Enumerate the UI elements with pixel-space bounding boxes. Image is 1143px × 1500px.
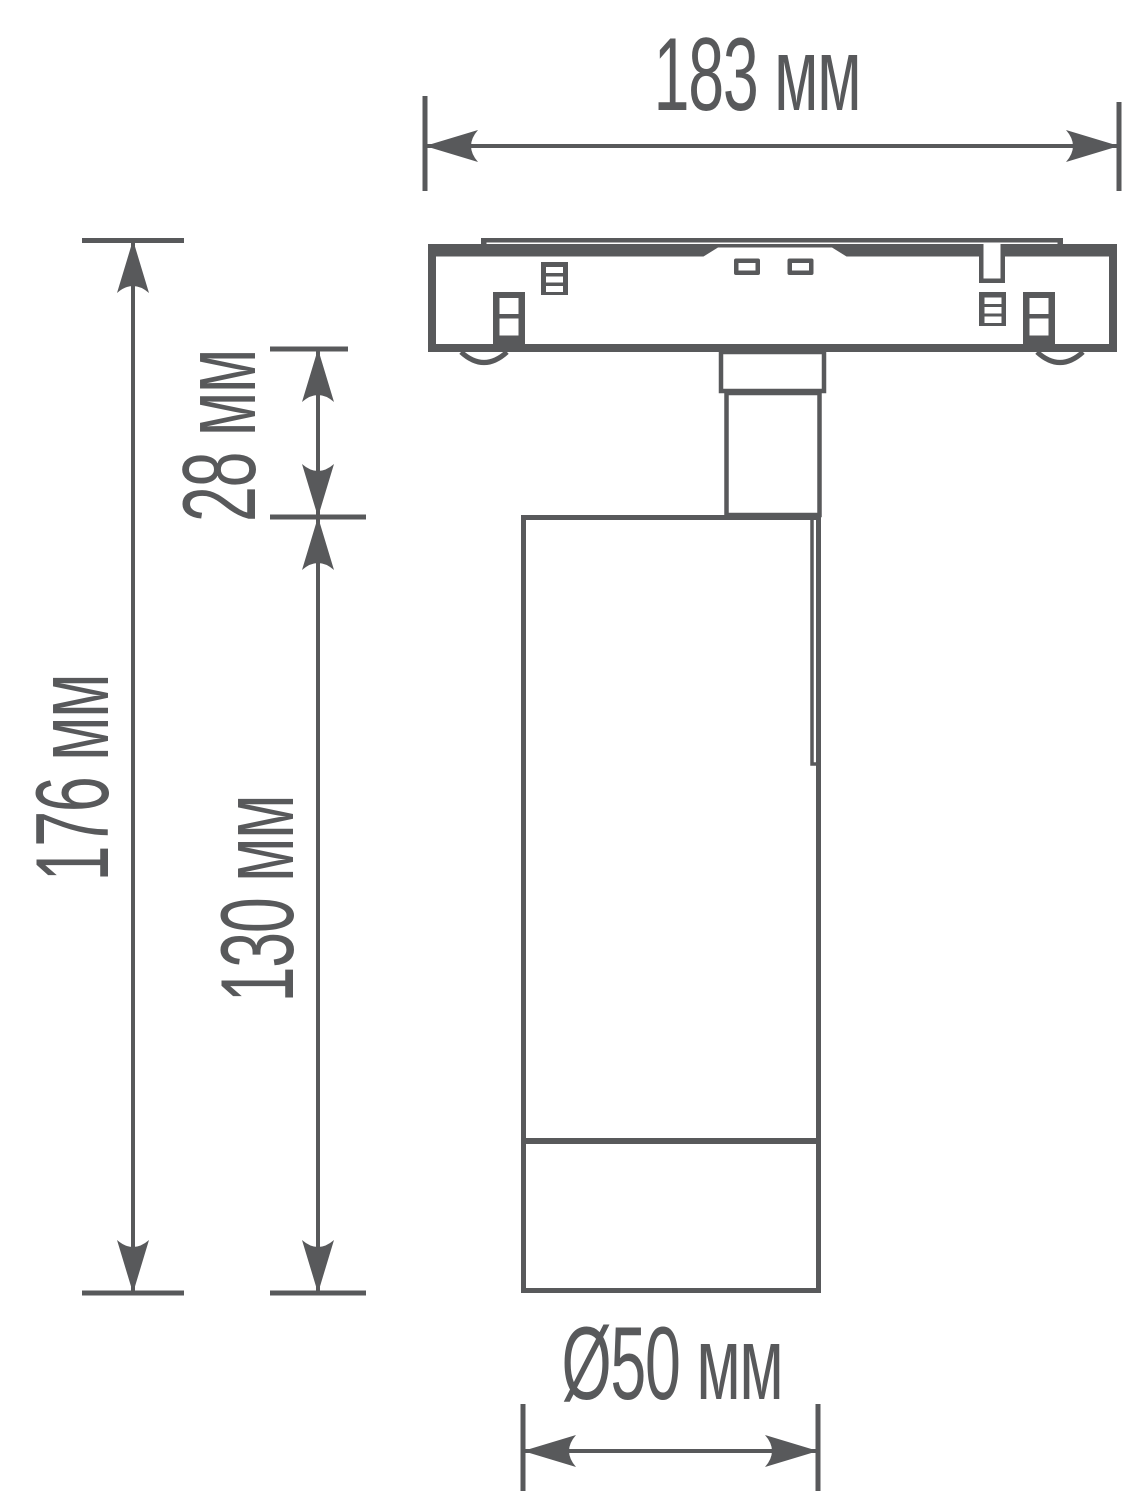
stem [727,393,820,515]
track-adapter [428,238,1117,363]
arrow-down-icon [117,1240,149,1293]
dimension-stem-height: 28 мм [162,349,366,522]
dimension-label-stem-height: 28 мм [162,350,277,522]
arrow-left-icon [425,130,478,162]
dimension-label-track-width: 183 мм [654,17,861,132]
lamp-assembly [521,352,824,1291]
arrow-up-icon [302,517,334,570]
track-spotlight-dimension-drawing: 183 мм 176 мм 28 мм 130 мм [0,0,1143,1500]
adapter-bottom-bar [428,344,1117,352]
dimension-label-body-height: 130 мм [200,796,315,1003]
arrow-up-icon [302,349,334,402]
adapter-top-bar [428,244,1117,257]
arrow-right-icon [1066,130,1119,162]
dimension-body-diameter: Ø50 мм [523,1306,818,1491]
lamp-body [524,518,819,1291]
roller-left [461,352,507,363]
luminaire-figure [428,238,1117,1291]
contact-block-right [979,292,1006,326]
arrow-left-icon [523,1435,576,1467]
adapter-top-plate [483,238,1063,243]
adapter-left-wall [428,244,436,352]
terminal-slot-1 [734,259,760,276]
dimension-total-height: 176 мм [15,240,184,1293]
connector-block-left [493,292,525,352]
adapter-right-wall [1109,244,1117,352]
dimension-body-height: 130 мм [200,517,366,1293]
roller-right [1037,352,1083,363]
arrow-right-icon [765,1435,818,1467]
arrow-down-icon [302,464,334,517]
technical-drawing-page: 183 мм 176 мм 28 мм 130 мм [0,0,1143,1500]
arrow-up-icon [117,240,149,293]
arrow-down-icon [302,1240,334,1293]
dimension-label-body-diameter: Ø50 мм [562,1306,783,1421]
dimension-label-total-height: 176 мм [15,675,130,882]
dimension-track-width: 183 мм [425,17,1119,191]
latch-slot-right [979,244,1005,283]
lamp-separator-line [521,1138,821,1144]
connector-block-right [1023,292,1055,352]
contact-block-left [541,262,568,295]
stem-flange [721,352,824,391]
terminal-slot-2 [788,259,814,276]
